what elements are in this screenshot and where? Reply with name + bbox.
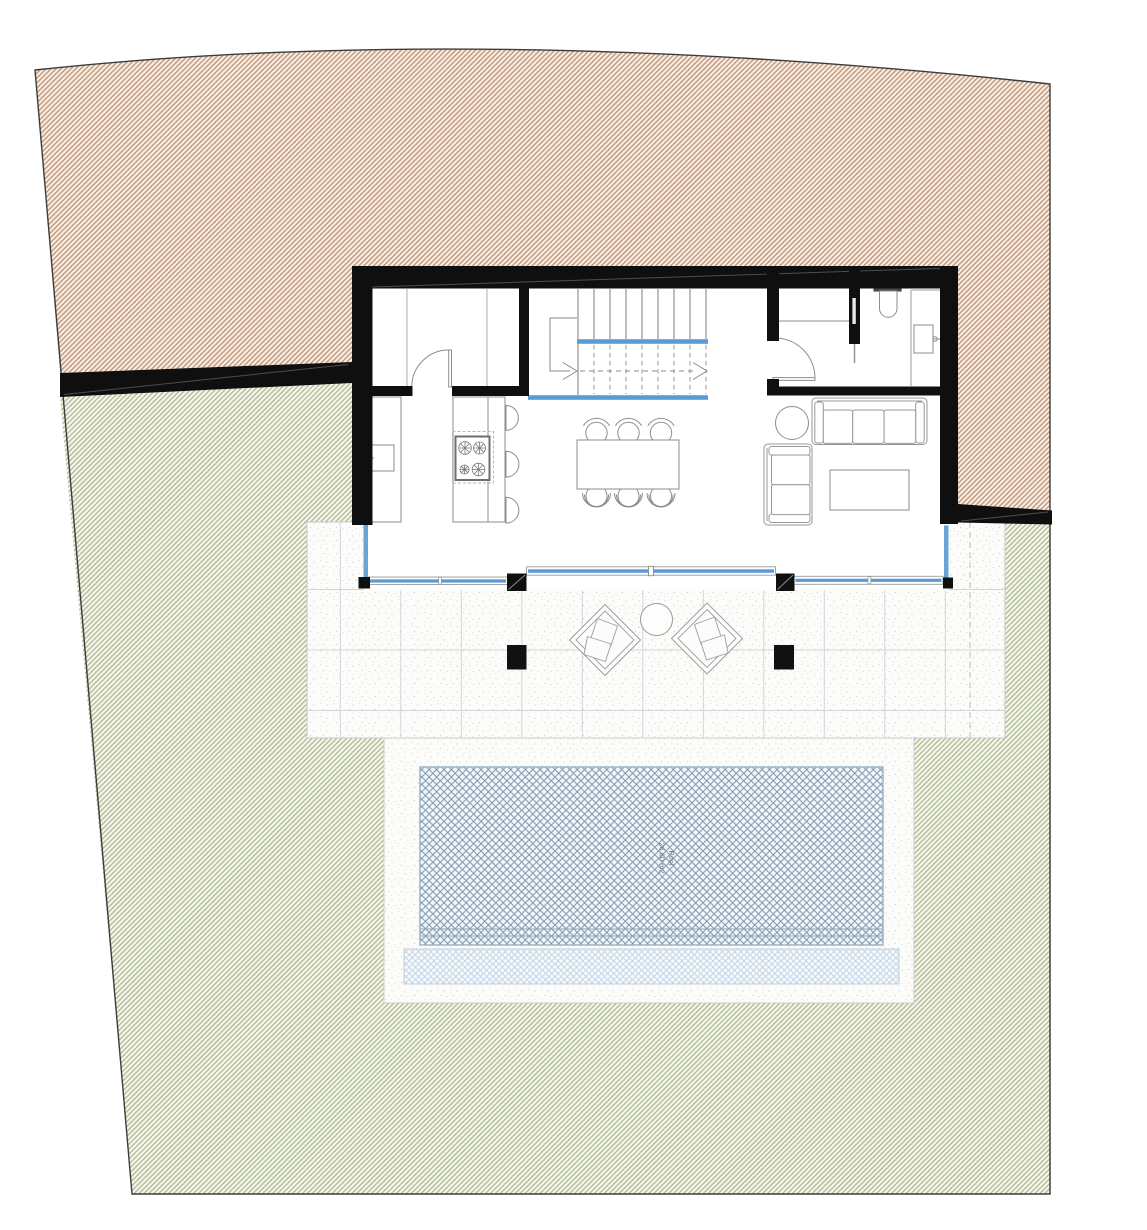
svg-text:26.60 m2: 26.60 m2 — [658, 842, 667, 873]
svg-text:Pool: Pool — [667, 850, 676, 865]
